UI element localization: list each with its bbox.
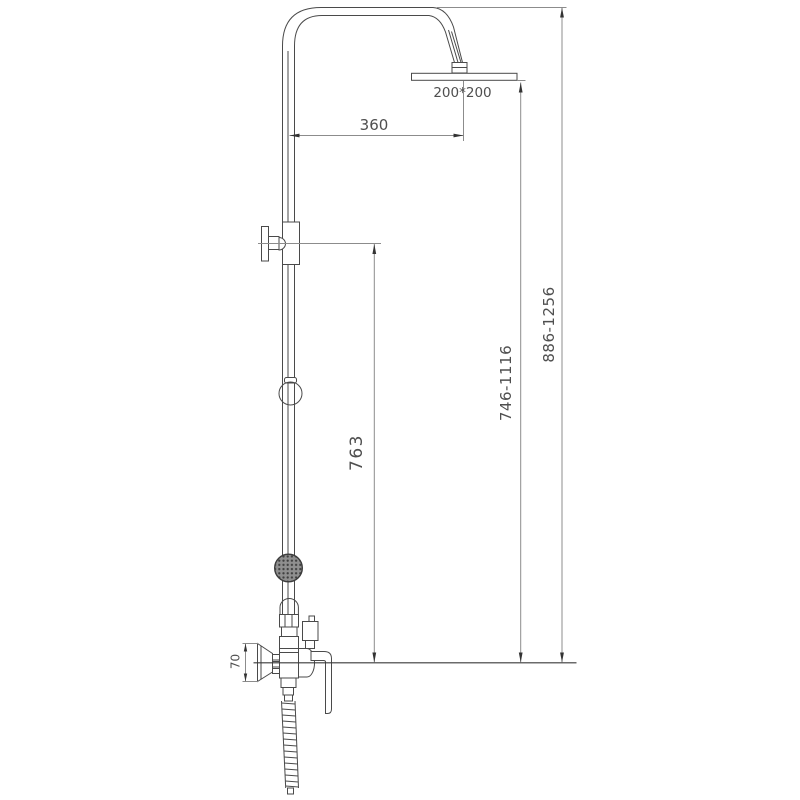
hand-shower-face xyxy=(275,554,303,582)
dim-label-arm-projection: 360 xyxy=(360,116,389,134)
mixer-body xyxy=(280,615,299,702)
diverter-knob xyxy=(303,616,319,649)
dim-riser-range: 746-1116 xyxy=(497,83,523,663)
shower-arm xyxy=(283,8,463,63)
dim-overall-range: 886-1256 xyxy=(540,8,564,663)
dim-label-overhead-size: 200*200 xyxy=(433,85,491,101)
mixer-handle xyxy=(299,649,332,714)
dim-escutcheon: 70 xyxy=(229,644,248,682)
dim-label-bracket-height: 763 xyxy=(347,434,367,471)
dim-overhead-size: 200*200 xyxy=(433,85,491,101)
overhead-shower-plate xyxy=(412,73,518,80)
hose-tip xyxy=(288,788,294,794)
technical-drawing: 360 200*200 763 746-1116 886-1256 70 xyxy=(0,0,800,800)
dim-bracket-height: 763 xyxy=(347,244,376,663)
shower-system-diagram: 360 200*200 763 746-1116 886-1256 70 xyxy=(0,0,800,800)
shower-hose xyxy=(282,701,299,794)
shower-head-connector xyxy=(452,63,467,74)
dim-label-riser-range: 746-1116 xyxy=(497,345,515,421)
dim-label-escutcheon: 70 xyxy=(229,654,243,669)
dim-arm-projection: 360 xyxy=(290,116,464,137)
dim-label-overall-range: 886-1256 xyxy=(540,286,558,362)
